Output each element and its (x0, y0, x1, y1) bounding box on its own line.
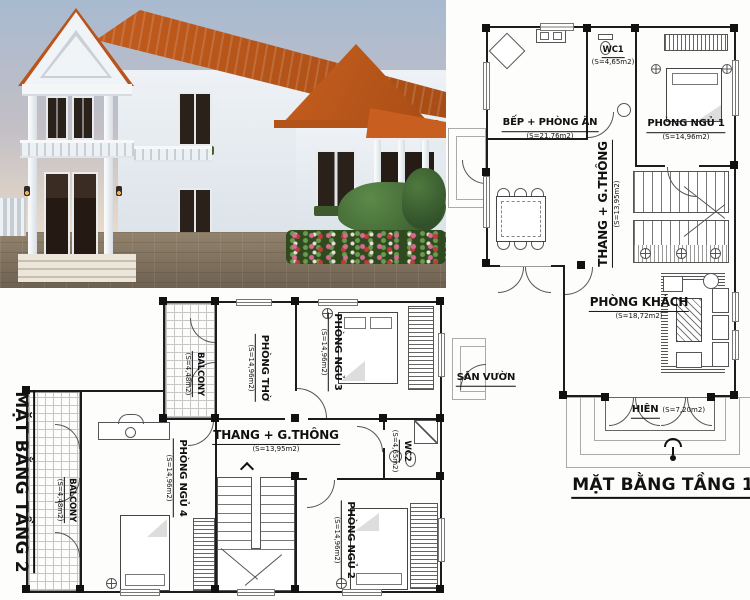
wall-segment (486, 26, 736, 28)
plan-title-1: MẶT BẰNG TẦNG 1 (571, 475, 750, 499)
column-marker (482, 24, 490, 32)
pillow (356, 573, 402, 585)
window-marker (438, 518, 445, 562)
room-area: (S=13,95m2) (252, 445, 299, 454)
room-area: (S=14,96m2) (662, 133, 709, 142)
upper-window (72, 96, 94, 140)
stool-icon (125, 427, 136, 438)
room-area: (S=4,48m2) (55, 479, 64, 522)
room-label-wc1: WC1 (S=4,65m2) (592, 45, 635, 67)
door-arc-icon (525, 267, 551, 293)
wall-segment (163, 418, 285, 420)
window (178, 92, 212, 146)
room-area: (S=18,72m2) (615, 312, 662, 321)
wardrobe-icon (410, 503, 438, 589)
door-arc-icon (357, 426, 383, 452)
room-area: (S=4,65m2) (592, 58, 635, 67)
upper-column (28, 96, 37, 142)
pillow (672, 73, 718, 85)
chair-icon (497, 188, 510, 196)
column-marker (730, 24, 738, 32)
window-marker (438, 333, 445, 377)
upper-column (104, 96, 113, 142)
column-marker (76, 585, 84, 593)
wall-segment (295, 301, 297, 391)
sofa-icon (712, 288, 729, 313)
column-marker (559, 391, 567, 399)
column-marker (159, 414, 167, 422)
room-area: (S=21,76m2) (526, 132, 573, 141)
house-photo (0, 0, 446, 288)
stove-icon (489, 33, 526, 70)
window-marker (732, 330, 739, 360)
pillow (125, 574, 165, 586)
door-arc-icon (188, 420, 214, 446)
window-marker (483, 62, 490, 110)
stair-landing (633, 212, 729, 221)
room-area: (S=14,96m2) (319, 328, 328, 375)
wardrobe-icon (193, 518, 215, 591)
sofa-icon (712, 342, 729, 367)
door-arc-icon (307, 480, 335, 508)
stair-stringer (251, 477, 261, 549)
wall-segment (80, 392, 82, 593)
nightstand-icon (336, 578, 347, 589)
room-area: (S=7,20m2) (662, 406, 705, 415)
room-name: THANG + G.THÔNG (212, 428, 340, 445)
room-label-bedroom4: PHÒNG NGỦ 4 (S=14,96m2) (164, 438, 188, 517)
hedge (402, 168, 446, 230)
column-marker (436, 297, 444, 305)
side-fence (0, 198, 26, 236)
table-inner (501, 201, 541, 237)
room-name: PHÒNG NGỦ 2 (341, 500, 356, 579)
column-marker (436, 472, 444, 480)
door-arc-icon (297, 388, 327, 418)
entry-door (72, 172, 98, 256)
nightstand-icon (651, 64, 661, 74)
column-marker (436, 585, 444, 593)
chair-icon (531, 242, 544, 250)
blanket-fold (355, 513, 379, 531)
column-marker (379, 414, 387, 422)
room-area: (S=14,96m2) (164, 454, 173, 501)
room-label-porch: HIÊN (S=7,20m2) (631, 404, 705, 419)
armchair-icon (663, 276, 683, 292)
room-label-garden: SÂN VƯỜN (456, 372, 516, 387)
window-marker (236, 299, 272, 306)
window-marker (237, 589, 275, 596)
sink-bowl (540, 32, 549, 40)
room-label-balcony-top: BALCONY (S=4,48m2) (183, 351, 205, 397)
room-label-bedroom2: PHÒNG NGỦ 2 (S=14,96m2) (332, 500, 356, 579)
column-marker (211, 297, 219, 305)
room-label-stairs-1: THANG + G.THÔNG (S=13,95m2) (596, 140, 622, 268)
column-marker (482, 168, 490, 176)
window-marker (732, 292, 739, 322)
window (178, 188, 212, 236)
newel-post-icon (640, 248, 651, 259)
room-name: BALCONY (64, 477, 77, 523)
column-marker (22, 585, 30, 593)
wall-segment (215, 301, 217, 420)
pillow (344, 317, 366, 329)
entry-steps (18, 254, 136, 282)
room-name: PHÒNG NGỦ 4 (173, 438, 188, 517)
column-marker (707, 393, 715, 401)
wall-segment (26, 390, 165, 392)
column-marker (436, 414, 444, 422)
column-marker (291, 472, 299, 480)
room-name: PHÒNG NGỦ 3 (328, 312, 343, 391)
wall-segment (337, 478, 442, 480)
column-marker (631, 24, 639, 32)
entry-arrow-dot (670, 455, 676, 461)
wardrobe-icon (664, 34, 728, 51)
room-label-living: PHÒNG KHÁCH (S=18,72m2) (589, 295, 689, 321)
column-marker (482, 259, 490, 267)
room-label-kitchen: BẾP + PHÒNG ĂN (S=21,76m2) (502, 117, 599, 141)
column-marker (730, 161, 738, 169)
plan-title-text: MẶT BẰNG TẦNG 2 (9, 390, 35, 573)
room-label-bedroom1: PHÒNG NGỦ 1 (S=14,96m2) (646, 118, 725, 142)
column-marker (211, 414, 219, 422)
wall-lamp (116, 186, 122, 196)
room-label-balcony-left: BALCONY (S=4,48m2) (55, 477, 77, 523)
chair-icon (497, 242, 510, 250)
chair-icon (514, 242, 527, 250)
room-label-worship: PHÒNG THỜ (S=14,96m2) (246, 334, 270, 402)
composite-image: BALCONY (S=4,48m2) PHÒNG THỜ (S=14,96m2)… (0, 0, 750, 600)
armchair-icon (676, 352, 702, 368)
chair-icon (514, 188, 527, 196)
room-name: SÂN VƯỜN (456, 372, 516, 387)
nightstand-icon (722, 64, 732, 74)
room-area: (S=4,65m2) (390, 430, 399, 473)
room-name: PHÒNG NGỦ 1 (646, 118, 725, 133)
room-name: THANG + G.THÔNG (596, 140, 613, 268)
room-name: WC2 (399, 440, 412, 463)
plan-title-text: MẶT BẰNG TẦNG 1 (571, 475, 750, 499)
room-name: PHÒNG THỜ (255, 334, 270, 402)
wardrobe-icon (408, 306, 434, 390)
room-area: (S=14,96m2) (246, 344, 255, 391)
wall-lamp (24, 186, 30, 196)
room-label-wc2: WC2 (S=4,65m2) (390, 430, 412, 473)
mirror-icon (118, 414, 144, 424)
column-marker (159, 297, 167, 305)
blanket-fold (147, 519, 167, 537)
entry-arrow-stem (672, 447, 674, 455)
plan-title-2: MẶT BẰNG TẦNG 2 (9, 390, 35, 573)
wall-segment (635, 26, 637, 167)
room-name: BẾP + PHÒNG ĂN (502, 117, 599, 132)
entry-door (44, 172, 70, 256)
bed-icon (120, 515, 170, 591)
room-area: (S=13,95m2) (613, 180, 622, 227)
column-marker (601, 393, 609, 401)
sofa-icon (712, 315, 729, 340)
wall-segment (295, 478, 297, 591)
bed-icon (666, 68, 722, 122)
window-marker (318, 299, 358, 306)
blanket-fold (341, 361, 365, 381)
column-marker (291, 414, 299, 422)
wall-segment (163, 301, 165, 420)
room-area: (S=4,48m2) (183, 353, 192, 396)
window-marker (483, 176, 490, 228)
room-name: HIÊN (631, 404, 660, 419)
balcony-balustrade (20, 140, 134, 158)
chair-icon (531, 188, 544, 196)
balcony-balustrade (134, 146, 212, 162)
sink-bowl (553, 32, 562, 40)
door-arc-icon (565, 267, 593, 295)
shower-icon (414, 420, 438, 444)
column-marker (583, 24, 591, 32)
sink-icon (617, 103, 631, 117)
kitchen-sink-icon (536, 29, 566, 43)
column-marker (291, 297, 299, 305)
room-label-bedroom3: PHÒNG NGỦ 3 (S=14,96m2) (319, 312, 343, 391)
wall-segment (383, 448, 385, 478)
window-marker (732, 60, 739, 116)
column-marker (730, 391, 738, 399)
bed-icon (350, 508, 408, 590)
column-marker (291, 585, 299, 593)
side-table-icon (703, 273, 719, 289)
column-marker (211, 585, 219, 593)
newel-post-icon (676, 248, 687, 259)
toilet-tank (598, 34, 613, 40)
stair-up-arrow-icon (240, 462, 254, 476)
entablature (22, 84, 132, 96)
window-marker (540, 23, 574, 31)
room-name: BALCONY (192, 351, 205, 397)
wall-segment (637, 165, 665, 167)
room-area: (S=14,96m2) (332, 516, 341, 563)
newel-post-icon (710, 248, 721, 259)
window-marker (342, 589, 382, 596)
pillow (370, 317, 392, 329)
nightstand-icon (106, 578, 117, 589)
wall-segment (163, 301, 442, 303)
room-name: WC1 (602, 45, 625, 58)
flower-bed (286, 230, 446, 264)
lower-column (28, 158, 37, 256)
room-name: PHÒNG KHÁCH (589, 295, 689, 312)
bed-icon (338, 312, 398, 384)
lower-column (104, 158, 113, 256)
window-marker (120, 589, 160, 596)
upper-window (46, 96, 68, 140)
room-label-stairs-2: THANG + G.THÔNG (S=13,95m2) (212, 428, 340, 454)
door-arc-icon (498, 267, 524, 293)
column-marker (577, 261, 585, 269)
